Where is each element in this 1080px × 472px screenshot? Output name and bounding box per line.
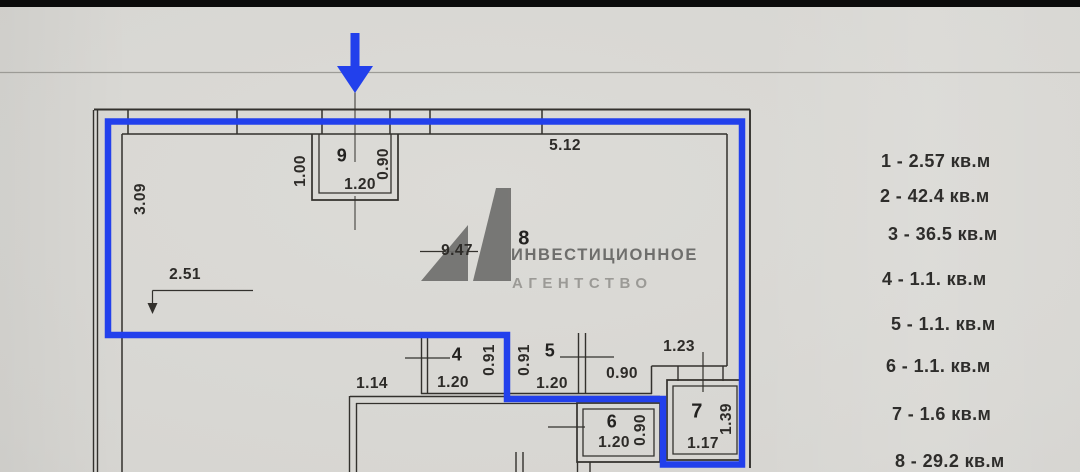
room-label-9: 9 [337,146,347,167]
dim-0-90-room9: 0.90 [375,148,393,180]
pointer-arrow-icon [337,33,373,93]
room-label-4: 4 [452,345,462,366]
watermark-agency-line2: АГЕНТСТВО [512,275,653,292]
watermark-agency-line1: ИНВЕСТИЦИОННОЕ [511,246,698,265]
dim-1-14: 1.14 [356,375,388,393]
highlighted-unit-outline [108,122,742,465]
dim-3-09: 3.09 [132,183,150,215]
legend-item-2: 2 - 42.4 кв.м [880,186,990,207]
dim-0-91-room5: 0.91 [516,344,534,376]
dim-0-90-room6: 0.90 [632,414,650,446]
legend-item-1: 1 - 2.57 кв.м [881,151,991,172]
room-label-5: 5 [545,341,555,362]
dim-1-39: 1.39 [718,403,736,435]
legend-item-4: 4 - 1.1. кв.м [882,269,987,290]
dim-1-20-room5: 1.20 [536,375,568,393]
dim-1-20-room6: 1.20 [598,434,630,452]
dim-1-20-room9: 1.20 [344,176,376,194]
legend-item-8: 8 - 29.2 кв.м [895,451,1005,472]
legend-item-5: 5 - 1.1. кв.м [891,314,996,335]
dim-0-90-hall: 0.90 [606,365,638,383]
watermark-a1-logo [421,188,511,281]
room-label-6: 6 [607,412,617,433]
dim-1-17: 1.17 [687,435,719,453]
dim-5-12: 5.12 [549,137,581,155]
dim-9-47: 9.47 [441,242,473,260]
dim-1-20-room4: 1.20 [437,374,469,392]
room-label-7: 7 [691,401,703,424]
legend-item-6: 6 - 1.1. кв.м [886,356,991,377]
dim-1-00: 1.00 [292,155,310,187]
floorplan-photo: 3.09 1.00 9 0.90 1.20 5.12 2.51 9.47 8 1… [0,0,1080,472]
dim-2-51: 2.51 [169,266,201,284]
dim-1-23: 1.23 [663,338,695,356]
legend-item-7: 7 - 1.6 кв.м [892,404,991,425]
legend-item-3: 3 - 36.5 кв.м [888,224,998,245]
dim-0-91-room4: 0.91 [481,344,499,376]
